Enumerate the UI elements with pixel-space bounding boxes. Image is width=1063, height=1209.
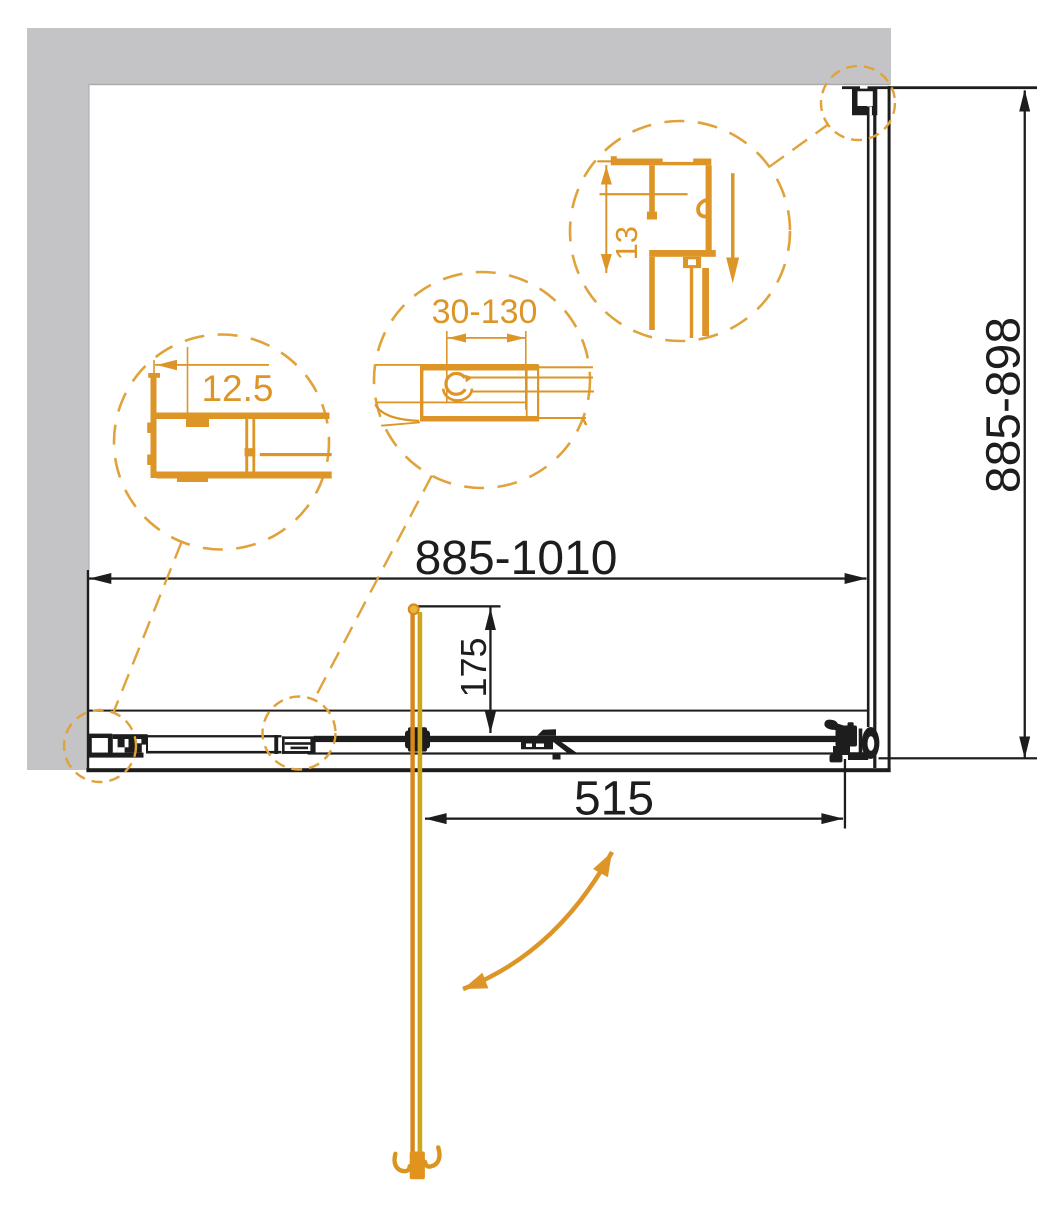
svg-text:30-130: 30-130 [432,293,538,331]
svg-text:885-1010: 885-1010 [415,532,618,585]
svg-text:13: 13 [609,226,644,260]
svg-text:885-898: 885-898 [978,317,1031,493]
svg-text:12.5: 12.5 [201,368,273,409]
svg-text:175: 175 [453,637,494,697]
svg-text:515: 515 [574,773,654,826]
